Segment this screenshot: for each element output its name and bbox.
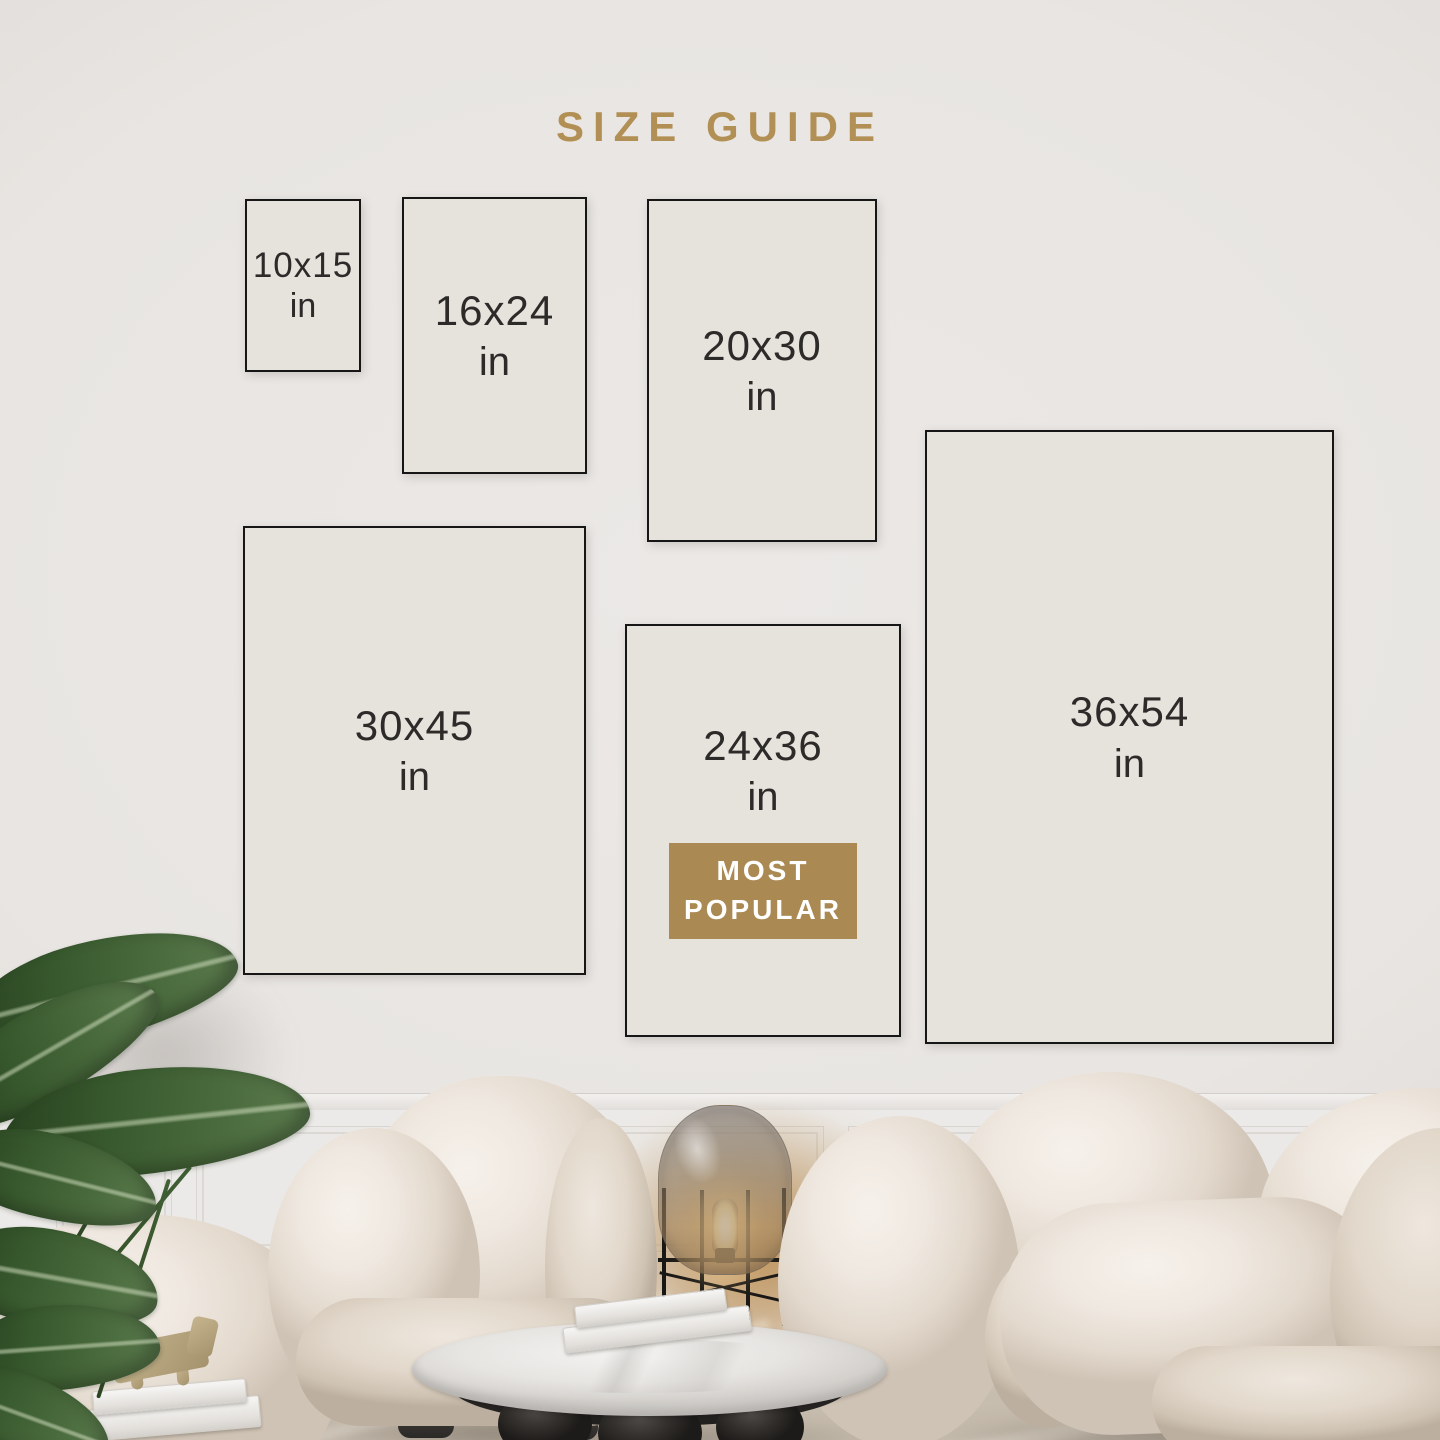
size-frame-20x30: 20x30 in (647, 199, 877, 542)
size-guide-poster: SIZE GUIDE 10x15 in 16x24 in 20x30 in 30… (0, 0, 1440, 1440)
size-frame-10x15: 10x15 in (245, 199, 361, 372)
size-label: 10x15 (253, 246, 353, 285)
size-label: 20x30 (702, 322, 821, 369)
most-popular-badge: MOST POPULAR (669, 843, 857, 938)
size-unit: in (746, 375, 777, 419)
size-label: 30x45 (355, 702, 474, 749)
size-unit: in (1114, 742, 1145, 786)
size-unit: in (747, 775, 778, 819)
size-frame-24x36: 24x36 in MOST POPULAR (625, 624, 901, 1037)
size-unit: in (479, 340, 510, 384)
size-label: 24x36 (703, 722, 822, 769)
badge-line-1: MOST (684, 852, 842, 891)
size-unit: in (399, 755, 430, 799)
size-frame-16x24: 16x24 in (402, 197, 587, 474)
size-label: 16x24 (435, 287, 554, 334)
badge-line-2: POPULAR (684, 891, 842, 930)
size-label: 36x54 (1070, 688, 1189, 735)
size-unit: in (290, 288, 316, 325)
sofa-base (1152, 1346, 1440, 1440)
size-frame-30x45: 30x45 in (243, 526, 586, 975)
size-frame-36x54: 36x54 in (925, 430, 1334, 1044)
page-title: SIZE GUIDE (0, 103, 1440, 151)
floor-lamp-shade (658, 1105, 792, 1275)
